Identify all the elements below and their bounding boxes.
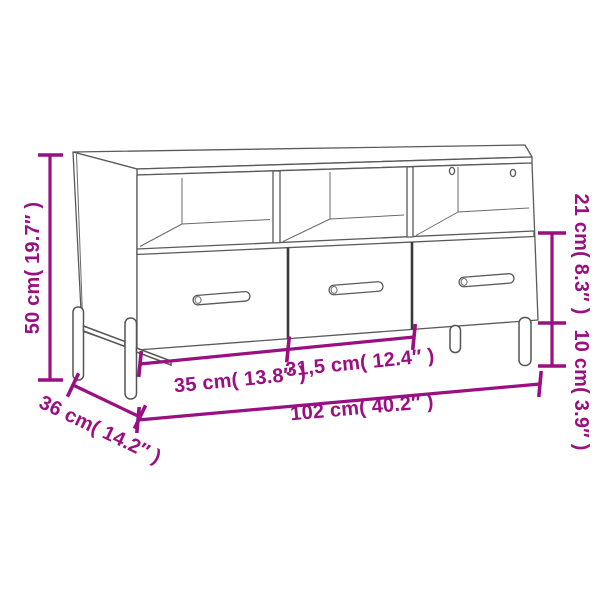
dim-overall-height: 50 cm( 19.7″ ) bbox=[22, 155, 63, 380]
dim-overall-height-label: 50 cm( 19.7″ ) bbox=[22, 202, 44, 334]
front-face bbox=[137, 163, 538, 350]
diagram-canvas: 50 cm( 19.7″ ) 21 cm( 8.3″ ) 10 cm( 3.9″… bbox=[0, 0, 600, 600]
cabinet-leg-back-right bbox=[450, 326, 461, 353]
dim-depth-label: 36 cm( 14.2″ ) bbox=[35, 392, 164, 469]
dim-overall-width-label: 102 cm( 40.2″ ) bbox=[289, 391, 434, 426]
cabinet-leg-back-left bbox=[73, 307, 84, 380]
dim-drawer-height-label: 21 cm( 8.3″ ) bbox=[570, 193, 592, 314]
compartment-divider bbox=[273, 171, 280, 243]
cable-hole bbox=[510, 169, 515, 176]
dim-middle-drawer-width-label: 31,5 cm( 12.4″ ) bbox=[285, 345, 436, 381]
cable-hole bbox=[449, 167, 454, 174]
dim-leg-height-label: 10 cm( 3.9″ ) bbox=[570, 329, 592, 450]
cabinet-leg-front-right bbox=[519, 318, 531, 366]
dim-right-heights: 21 cm( 8.3″ ) 10 cm( 3.9″ ) bbox=[538, 193, 592, 450]
cabinet-leg-front-left bbox=[125, 318, 137, 399]
tv-cabinet-dimension-diagram: 50 cm( 19.7″ ) 21 cm( 8.3″ ) 10 cm( 3.9″… bbox=[0, 0, 600, 600]
compartment-divider bbox=[407, 167, 413, 237]
